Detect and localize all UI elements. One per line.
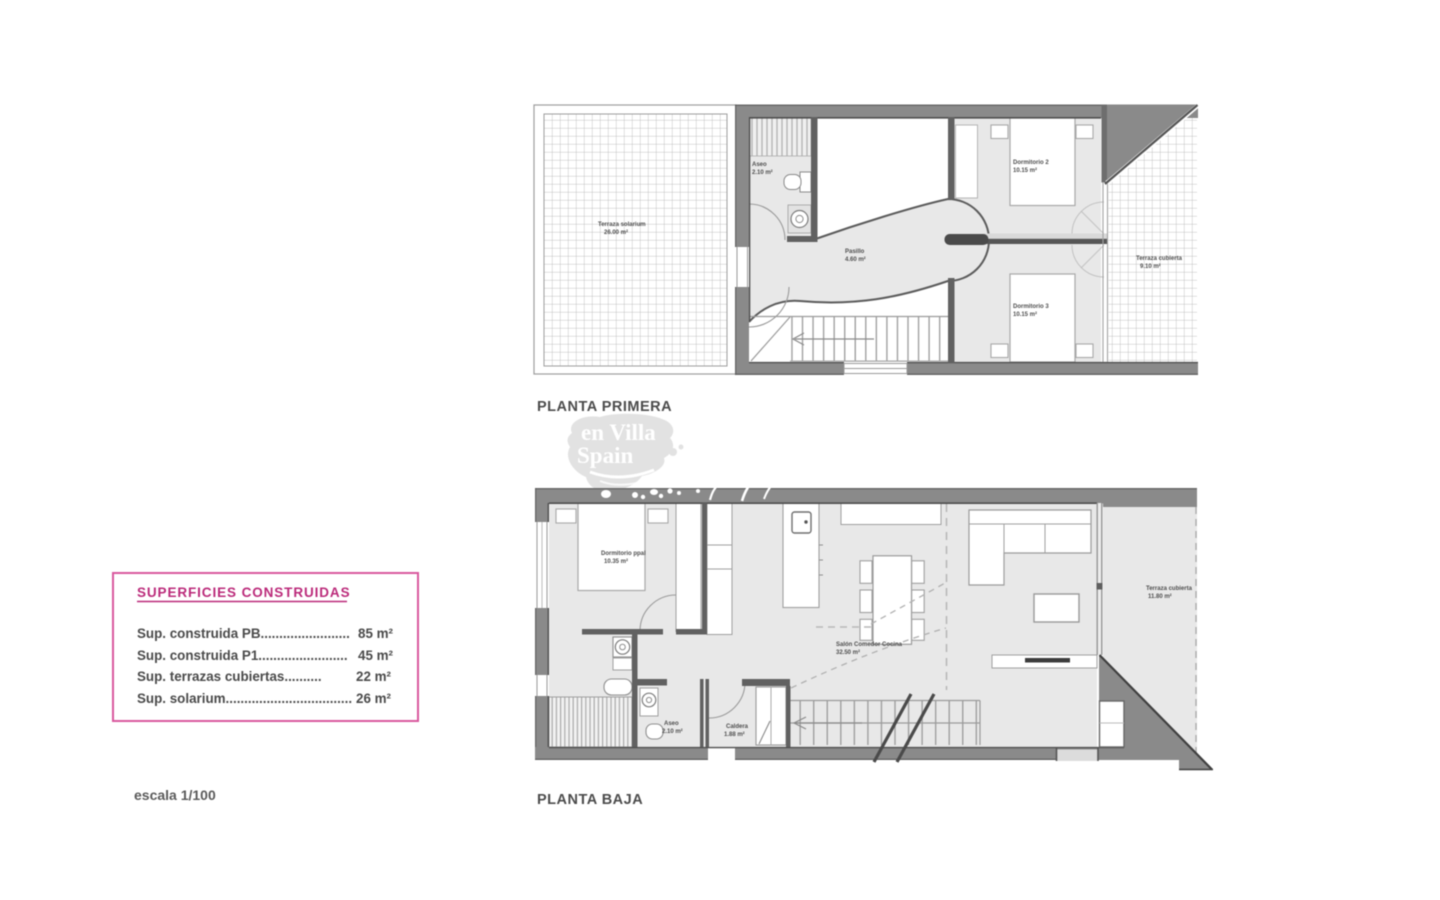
- svg-text:45 m²: 45 m²: [358, 648, 394, 663]
- svg-text:PLANTA PRIMERA: PLANTA PRIMERA: [537, 399, 672, 415]
- svg-text:Sup. solarium.................: Sup. solarium...........................…: [137, 691, 352, 706]
- svg-text:32.50 m²: 32.50 m²: [836, 649, 860, 656]
- svg-text:Sup. construida PB............: Sup. construida PB......................…: [137, 626, 350, 641]
- svg-text:Aseo: Aseo: [752, 162, 767, 168]
- svg-text:Dormitorio 2: Dormitorio 2: [1013, 160, 1049, 166]
- svg-text:10.35 m²: 10.35 m²: [604, 558, 628, 565]
- svg-text:4.60 m²: 4.60 m²: [845, 256, 866, 263]
- svg-text:PLANTA BAJA: PLANTA BAJA: [537, 792, 643, 808]
- svg-text:SUPERFICIES CONSTRUIDAS: SUPERFICIES CONSTRUIDAS: [137, 585, 350, 600]
- svg-text:Salón Comedor Cocina: Salón Comedor Cocina: [836, 642, 903, 648]
- svg-text:Caldera: Caldera: [726, 724, 749, 730]
- svg-text:22 m²: 22 m²: [356, 669, 392, 684]
- svg-text:Aseo: Aseo: [664, 721, 679, 727]
- svg-text:26.00 m²: 26.00 m²: [604, 229, 628, 236]
- svg-text:2.10 m²: 2.10 m²: [752, 169, 773, 176]
- svg-text:escala 1/100: escala 1/100: [134, 787, 216, 803]
- svg-text:Terraza cubierta: Terraza cubierta: [1136, 256, 1183, 262]
- svg-text:1.88 m²: 1.88 m²: [724, 731, 745, 738]
- svg-text:11.80 m²: 11.80 m²: [1148, 593, 1172, 600]
- svg-text:Terraza solarium: Terraza solarium: [598, 222, 646, 228]
- svg-text:10.15 m²: 10.15 m²: [1013, 311, 1037, 318]
- svg-text:26 m²: 26 m²: [356, 691, 392, 706]
- svg-text:Sup. construida P1............: Sup. construida P1......................…: [137, 648, 348, 663]
- svg-text:Dormitorio 3: Dormitorio 3: [1013, 304, 1049, 310]
- svg-text:85 m²: 85 m²: [358, 626, 394, 641]
- svg-text:2.10 m²: 2.10 m²: [662, 728, 683, 735]
- svg-text:Dormitorio ppal: Dormitorio ppal: [601, 551, 646, 557]
- svg-text:en Villa: en Villa: [581, 420, 656, 445]
- svg-text:9.10 m²: 9.10 m²: [1140, 263, 1161, 270]
- svg-text:Sup. terrazas cubiertas.......: Sup. terrazas cubiertas..........: [137, 669, 322, 684]
- svg-text:Terraza cubierta: Terraza cubierta: [1146, 586, 1193, 592]
- svg-text:10.15 m²: 10.15 m²: [1013, 167, 1037, 174]
- svg-text:Pasillo: Pasillo: [845, 249, 865, 255]
- svg-text:Spain: Spain: [577, 443, 633, 468]
